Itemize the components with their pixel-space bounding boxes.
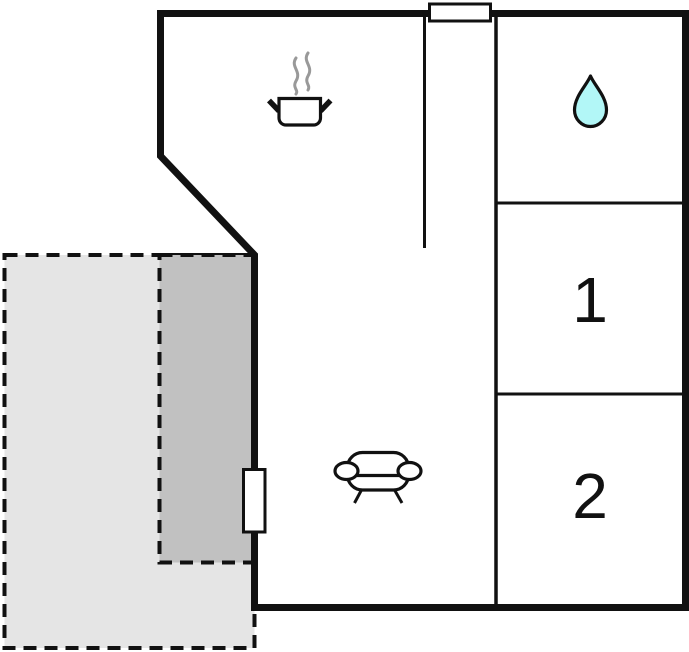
covered-terrace-area	[160, 255, 254, 563]
floor-plan: 1 2	[0, 0, 689, 652]
pot-body	[279, 99, 321, 126]
entrance-door	[244, 470, 266, 533]
sofa-armrest-left	[335, 463, 358, 480]
floor-plan-svg: 1 2	[0, 0, 689, 652]
window-opening	[430, 4, 491, 21]
sofa-armrest-right	[398, 463, 421, 480]
bedroom-2-label: 2	[572, 460, 608, 532]
bedroom-1-label: 1	[572, 264, 608, 336]
